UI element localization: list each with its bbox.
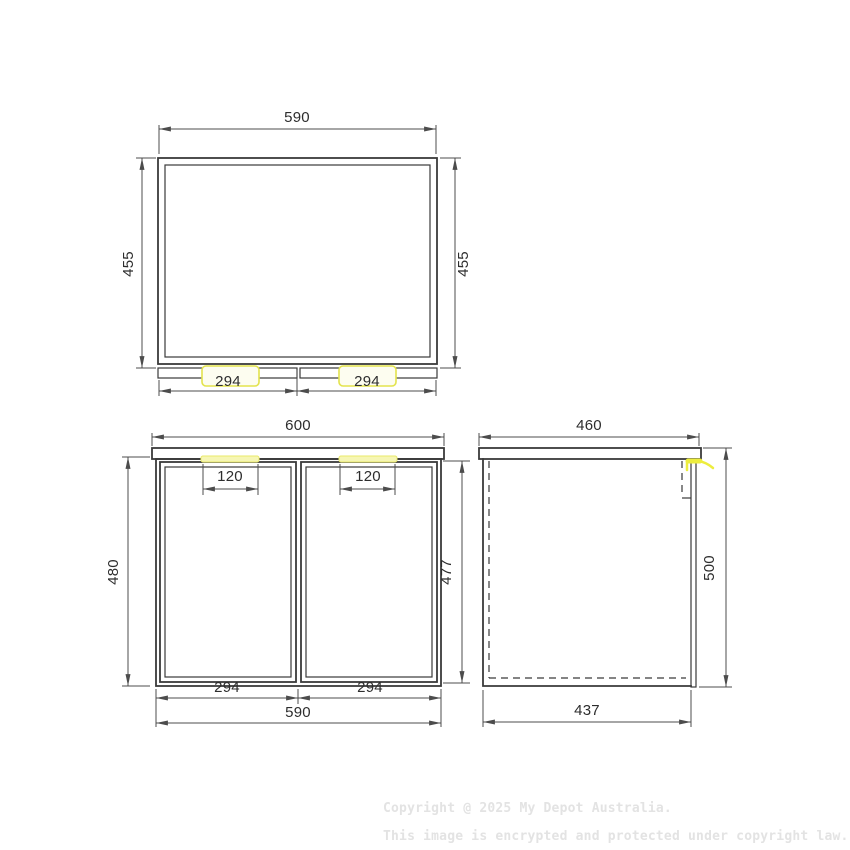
front-view-right-handle-highlight	[339, 456, 397, 462]
watermark: Copyright @ 2025 My Depot Australia. Thi…	[383, 795, 849, 850]
top-depth-right-dim-label: 455	[455, 251, 472, 277]
front-height-right-dim-label: 477	[438, 559, 455, 585]
front-door-left-dim-label: 294	[214, 679, 240, 696]
front-height-left-dim-label: 480	[105, 559, 122, 585]
front-handle-left-dim-label: 120	[217, 468, 243, 485]
watermark-line1: Copyright @ 2025 My Depot Australia.	[383, 795, 849, 823]
front-handle-right-dim-label: 120	[355, 468, 381, 485]
drawing-canvas: 590 455 455 294 294	[0, 0, 850, 850]
side-top-depth-dim-label: 460	[576, 417, 602, 434]
front-view-outline	[152, 448, 444, 686]
watermark-line2: This image is encrypted and protected un…	[383, 823, 849, 850]
top-depth-left-dim-label: 455	[120, 251, 137, 277]
top-door-right-dim-label: 294	[354, 373, 380, 390]
front-view-left-handle-highlight	[201, 456, 259, 462]
top-view-dimensions: 590 455 455 294 294	[120, 109, 472, 396]
top-door-left-dim-label: 294	[215, 373, 241, 390]
technical-drawing-svg: 590 455 455 294 294	[0, 0, 850, 850]
top-width-dim-label: 590	[284, 109, 310, 126]
side-view-outline	[479, 448, 713, 687]
front-bottom-width-dim-label: 590	[285, 704, 311, 721]
front-top-width-dim-label: 600	[285, 417, 311, 434]
front-door-right-dim-label: 294	[357, 679, 383, 696]
top-view-outline	[158, 158, 437, 386]
side-height-dim-label: 500	[701, 555, 718, 581]
side-bottom-depth-dim-label: 437	[574, 702, 600, 719]
